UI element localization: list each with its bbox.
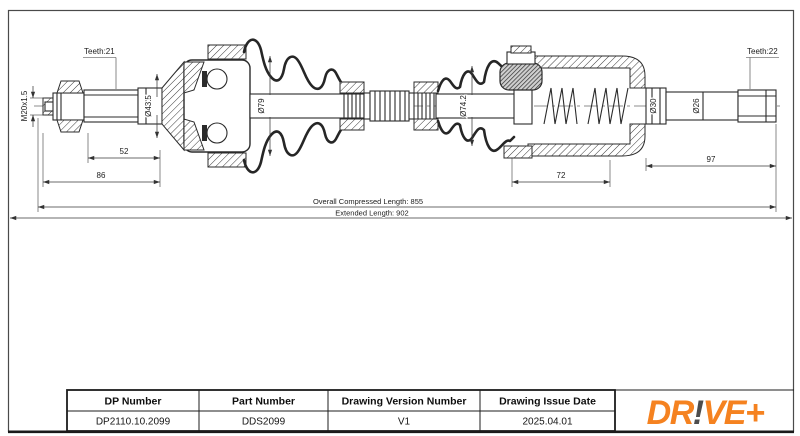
shaft-right (436, 94, 516, 118)
outer-joint-dia-label: Ø43.5 (144, 95, 153, 117)
sheet-frame (8, 11, 794, 432)
housing-foot (504, 146, 532, 158)
dim-72-label: 72 (557, 171, 566, 180)
value-issue-date: 2025.04.01 (522, 417, 572, 428)
boot-clamp-small-right-bottom (414, 119, 438, 130)
value-drawing-version: V1 (398, 417, 411, 428)
dim-86-label: 86 (97, 171, 106, 180)
teeth-right-label: Teeth:22 (747, 47, 778, 56)
drawing-sheet: Teeth:21 Teeth:22 M20x1.5 Ø43.5 Ø79 Ø74.… (0, 0, 800, 436)
right-boot-dia-label: Ø74.2 (459, 95, 468, 117)
boot-clamp-large-bottom (208, 153, 246, 167)
stub-dia-label: Ø26 (692, 98, 701, 114)
header-issue-date: Drawing Issue Date (499, 396, 596, 408)
title-block: DP Number Part Number Drawing Version Nu… (67, 390, 794, 432)
boot-clamp-small-right-top (414, 82, 438, 93)
drive-plus-logo: DR!VE+ (647, 394, 765, 432)
thread-spec-label: M20x1.5 (20, 90, 29, 121)
value-dp-number: DP2110.10.2099 (96, 417, 171, 428)
bearing-cage-bottom (202, 125, 207, 141)
dim-97-label: 97 (707, 155, 716, 164)
shaft-left (250, 94, 364, 118)
boot-clamp-small-left-bottom (340, 119, 364, 130)
collar-dia-label: Ø30 (649, 98, 658, 114)
value-part-number: DDS2099 (242, 417, 286, 428)
roller-cap (507, 52, 535, 64)
teeth-left-label: Teeth:21 (84, 47, 115, 56)
tripod-stem (514, 88, 532, 124)
overall-length-label: Overall Compressed Length: 855 (313, 197, 423, 206)
bearing-ball-top (207, 69, 227, 89)
left-boot-dia-label: Ø79 (257, 98, 266, 114)
bearing-cage-top (202, 71, 207, 87)
spline-collar-bottom (57, 120, 83, 132)
right-spline-shaft (738, 90, 776, 122)
header-drawing-version: Drawing Version Number (342, 396, 467, 408)
spline-collar-top (57, 81, 83, 93)
bearing-ball-bottom (207, 123, 227, 143)
dim-52-label: 52 (120, 147, 129, 156)
tripod-roller (500, 63, 542, 90)
header-part-number: Part Number (232, 396, 295, 408)
extended-length-label: Extended Length: 902 (335, 209, 408, 218)
stub-shaft-assembly (646, 88, 776, 124)
boot-clamp-large-top (208, 45, 246, 59)
boot-clamp-small-left-top (340, 82, 364, 93)
stub-shaft (666, 92, 738, 120)
lock-nut (53, 93, 84, 120)
header-dp-number: DP Number (105, 396, 162, 408)
